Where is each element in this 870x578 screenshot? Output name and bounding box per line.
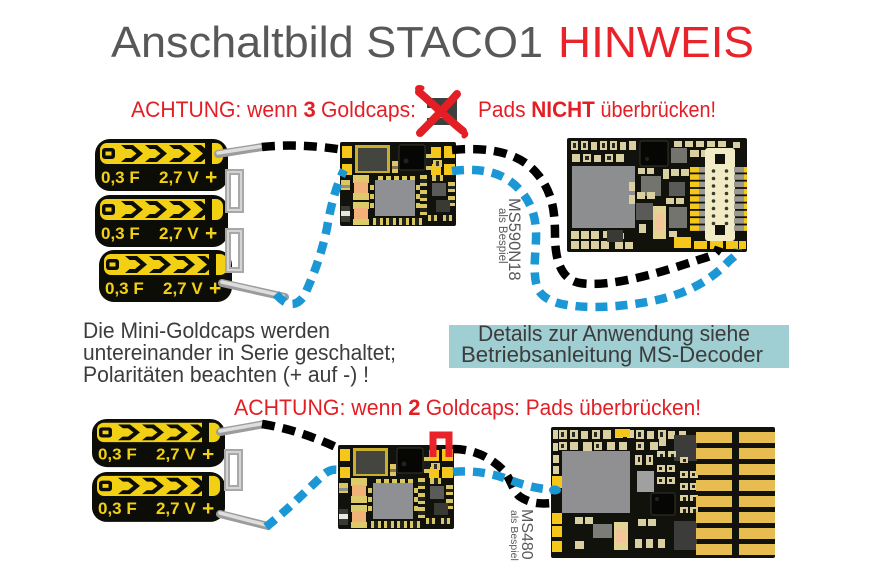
svg-text:überbrücken!: überbrücken!	[601, 97, 717, 122]
svg-text:2: 2	[408, 395, 420, 420]
svg-text:ACHTUNG: wenn: ACHTUNG: wenn	[131, 97, 298, 122]
svg-text:Goldcaps: Pads überbrücken!: Goldcaps: Pads überbrücken!	[426, 395, 701, 420]
svg-text:HINWEIS: HINWEIS	[558, 18, 754, 67]
svg-text:Polaritäten beachten (+ auf -): Polaritäten beachten (+ auf -) !	[83, 362, 369, 387]
svg-text:ACHTUNG: wenn: ACHTUNG: wenn	[234, 395, 402, 420]
svg-text:Goldcaps:: Goldcaps:	[321, 97, 416, 122]
svg-text:Betriebsanleitung MS-Decoder: Betriebsanleitung MS-Decoder	[461, 342, 763, 367]
svg-text:Anschaltbild STACO1: Anschaltbild STACO1	[111, 18, 543, 67]
svg-text:als Bespiel: als Bespiel	[496, 208, 508, 264]
svg-text:als Bespiel: als Bespiel	[508, 510, 520, 561]
svg-text:NICHT: NICHT	[531, 97, 595, 122]
svg-text:Pads: Pads	[478, 97, 526, 122]
svg-text:3: 3	[304, 97, 316, 122]
